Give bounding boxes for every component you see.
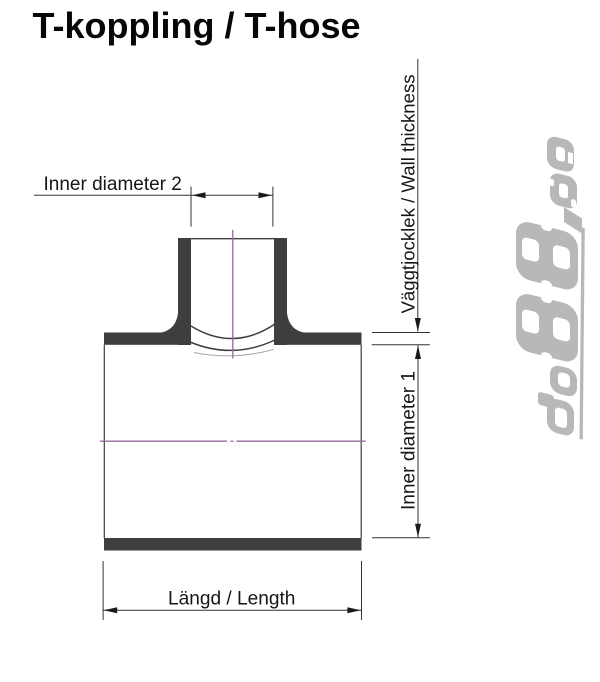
svg-text:Längd / Length: Längd / Length	[168, 589, 295, 610]
svg-text:Inner diameter 2: Inner diameter 2	[44, 174, 182, 195]
svg-text:Väggtjocklek / Wall thickness: Väggtjocklek / Wall thickness	[398, 74, 419, 313]
svg-text:Inner diameter 1: Inner diameter 1	[399, 371, 420, 510]
svg-text:T-koppling / T-hose: T-koppling / T-hose	[33, 5, 361, 46]
